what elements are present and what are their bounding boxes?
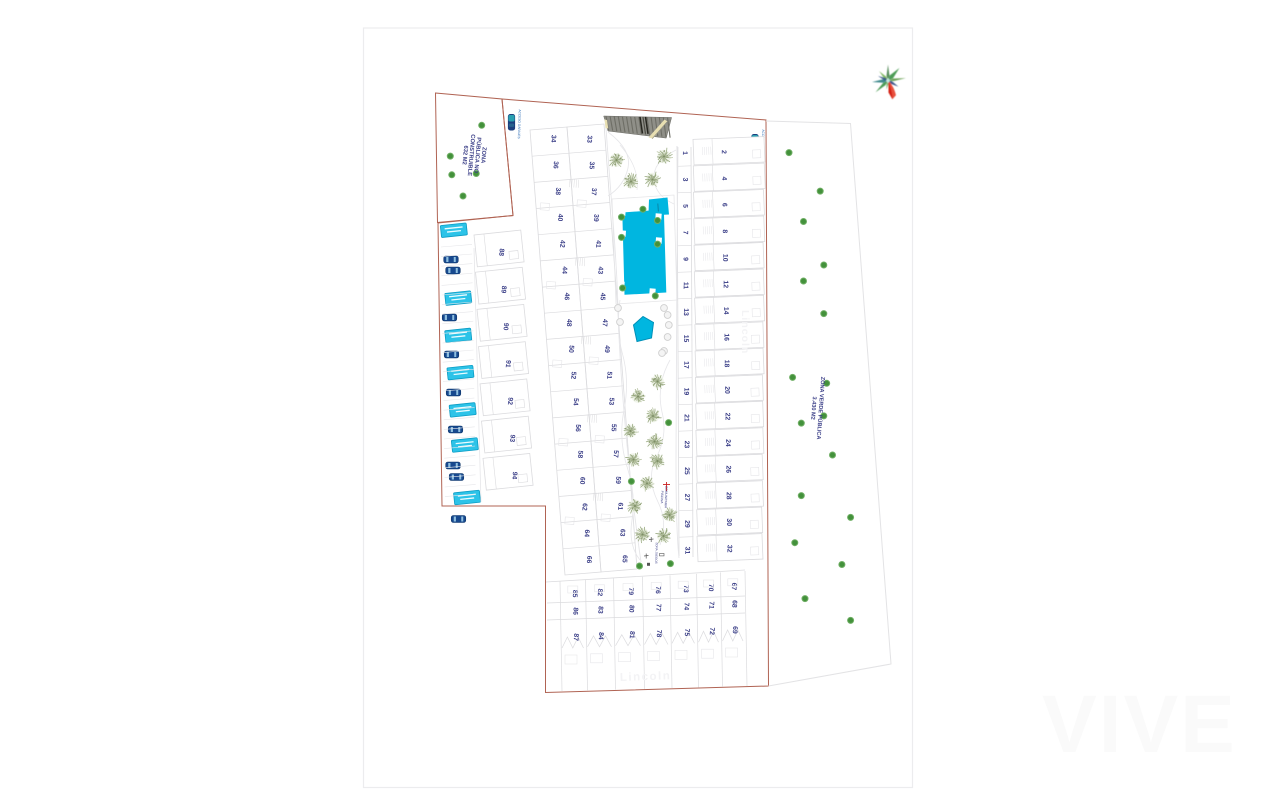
svg-text:60: 60 [578, 477, 586, 485]
svg-text:18: 18 [723, 360, 730, 368]
svg-text:1: 1 [681, 151, 688, 155]
svg-text:48: 48 [565, 319, 573, 327]
svg-text:3: 3 [681, 178, 688, 182]
svg-text:93: 93 [508, 434, 516, 442]
svg-text:75: 75 [683, 628, 691, 636]
svg-text:7: 7 [681, 231, 688, 235]
svg-text:55: 55 [609, 424, 617, 432]
svg-text:56: 56 [574, 424, 582, 432]
svg-text:21: 21 [683, 414, 690, 422]
svg-text:39: 39 [592, 214, 600, 222]
svg-text:47: 47 [601, 319, 609, 327]
svg-text:86: 86 [571, 607, 579, 615]
svg-text:41: 41 [594, 240, 602, 248]
svg-text:14: 14 [722, 307, 729, 315]
svg-text:70: 70 [707, 584, 715, 592]
svg-text:12: 12 [722, 280, 729, 288]
svg-text:53: 53 [607, 397, 615, 405]
svg-text:82: 82 [596, 588, 604, 596]
svg-text:61: 61 [616, 502, 624, 510]
svg-text:PISCINA: PISCINA [660, 491, 664, 505]
svg-text:90: 90 [501, 322, 509, 330]
svg-text:80: 80 [627, 605, 635, 613]
svg-text:94: 94 [510, 471, 518, 479]
svg-text:65: 65 [620, 555, 628, 563]
svg-text:ZONA JUEGOS: ZONA JUEGOS [654, 542, 659, 563]
svg-text:19: 19 [682, 388, 689, 396]
svg-text:15: 15 [682, 335, 689, 343]
svg-text:17: 17 [682, 361, 689, 369]
svg-text:76: 76 [654, 586, 662, 594]
svg-text:33: 33 [585, 135, 593, 143]
svg-text:62: 62 [580, 503, 588, 511]
svg-text:69: 69 [731, 626, 739, 634]
svg-text:57: 57 [612, 450, 620, 458]
svg-text:11: 11 [682, 282, 689, 290]
svg-text:VIVE: VIVE [1042, 679, 1237, 770]
svg-text:37: 37 [590, 188, 598, 196]
svg-text:5: 5 [681, 204, 688, 208]
svg-text:30: 30 [725, 518, 732, 526]
svg-text:24: 24 [724, 439, 731, 447]
svg-text:8: 8 [721, 229, 728, 233]
svg-text:66: 66 [585, 555, 593, 563]
svg-text:Lincoln: Lincoln [739, 310, 751, 354]
svg-text:78: 78 [655, 629, 663, 637]
svg-text:2: 2 [720, 150, 727, 154]
svg-text:23: 23 [683, 441, 690, 449]
svg-text:25: 25 [683, 467, 690, 475]
svg-text:87: 87 [572, 633, 580, 641]
svg-text:83: 83 [596, 606, 604, 614]
svg-text:51: 51 [605, 371, 613, 379]
svg-text:20: 20 [723, 386, 730, 394]
svg-text:81: 81 [628, 631, 636, 639]
svg-text:43: 43 [596, 266, 604, 274]
svg-text:77: 77 [654, 603, 662, 611]
svg-text:34: 34 [549, 135, 557, 143]
svg-text:29: 29 [683, 520, 690, 528]
svg-text:13: 13 [682, 308, 689, 316]
svg-text:91: 91 [504, 360, 512, 368]
svg-text:71: 71 [707, 601, 715, 609]
svg-text:44: 44 [560, 266, 568, 274]
svg-text:68: 68 [730, 600, 738, 608]
svg-text:52: 52 [569, 371, 577, 379]
svg-text:36: 36 [551, 161, 559, 169]
svg-text:Lincoln: Lincoln [620, 670, 672, 684]
svg-text:32: 32 [725, 545, 732, 553]
svg-text:28: 28 [725, 492, 732, 500]
svg-text:27: 27 [683, 494, 690, 502]
svg-text:63: 63 [618, 529, 626, 537]
svg-text:22: 22 [724, 413, 731, 421]
svg-text:88: 88 [497, 248, 505, 256]
svg-text:4: 4 [720, 176, 727, 180]
svg-text:67: 67 [730, 582, 738, 590]
svg-text:16: 16 [722, 333, 729, 341]
svg-text:58: 58 [576, 450, 584, 458]
svg-text:35: 35 [587, 161, 595, 169]
svg-text:6: 6 [721, 203, 728, 207]
svg-text:59: 59 [614, 476, 622, 484]
svg-text:92: 92 [506, 397, 514, 405]
svg-text:74: 74 [682, 602, 690, 610]
svg-text:42: 42 [558, 240, 566, 248]
svg-text:45: 45 [598, 292, 606, 300]
svg-text:40: 40 [556, 213, 564, 221]
svg-text:89: 89 [499, 285, 507, 293]
svg-text:31: 31 [683, 547, 690, 555]
svg-text:84: 84 [597, 632, 605, 640]
svg-text:72: 72 [708, 627, 716, 635]
svg-text:46: 46 [563, 292, 571, 300]
svg-text:49: 49 [603, 345, 611, 353]
svg-text:38: 38 [554, 187, 562, 195]
svg-text:26: 26 [724, 465, 731, 473]
svg-text:50: 50 [567, 345, 575, 353]
svg-text:85: 85 [571, 590, 579, 598]
svg-text:64: 64 [583, 529, 591, 537]
svg-text:54: 54 [572, 398, 580, 406]
svg-text:COMUNITARIA: COMUNITARIA [664, 486, 669, 509]
svg-text:10: 10 [721, 254, 728, 262]
svg-text:9: 9 [682, 257, 689, 261]
